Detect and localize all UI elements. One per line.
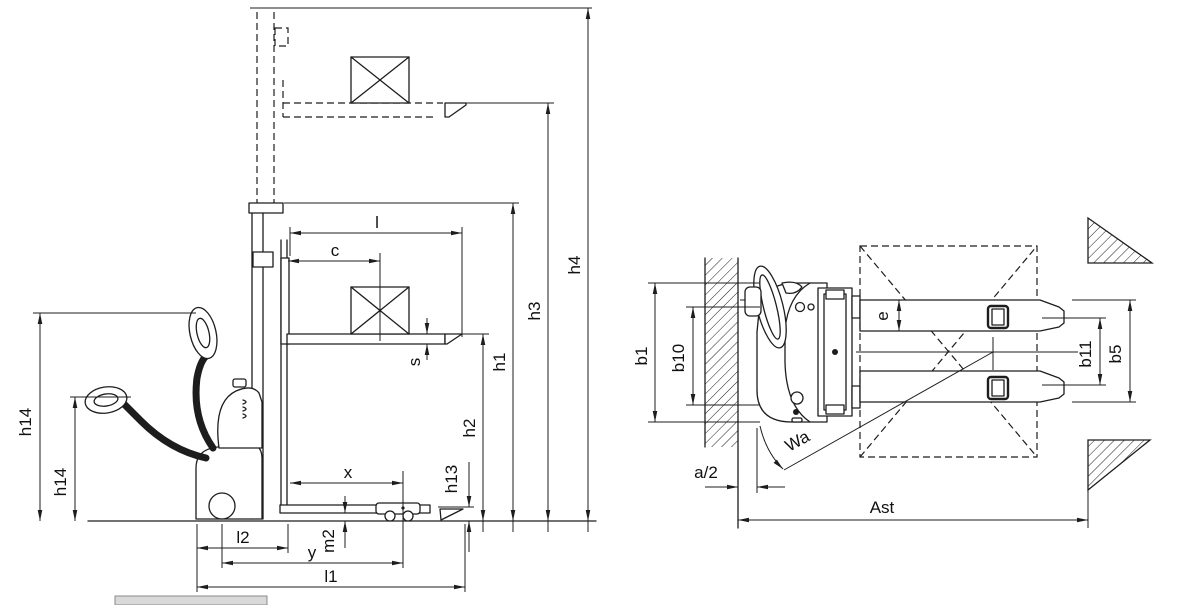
cowl-cap: [233, 379, 246, 387]
dim-label-h2: h2: [460, 419, 479, 438]
dim-label-a-half: a/2: [694, 463, 718, 482]
load-wheel-1: [385, 511, 395, 521]
dim-b1: b1: [632, 283, 760, 422]
dim-label-s: s: [405, 358, 424, 367]
drive-wheel: [209, 493, 235, 519]
stacker-dimension-diagram: h4 h3 h1 h2 h13 h: [0, 0, 1198, 605]
dim-h3: h3: [455, 103, 554, 532]
carriage-top: [818, 288, 860, 416]
caption-bar: [115, 596, 267, 605]
dim-label-ast: Ast: [870, 498, 895, 517]
side-view: h4 h3 h1 h2 h13 h: [16, 8, 596, 605]
dim-label-b5: b5: [1106, 345, 1125, 364]
dim-h14-raised: h14: [16, 313, 196, 521]
fork-roller-upper-inner: [992, 309, 1004, 325]
dim-label-b10: b10: [669, 344, 688, 372]
dim-label-x: x: [344, 463, 353, 482]
dim-label-y: y: [308, 543, 317, 562]
tiller-raised: [184, 305, 221, 448]
lower-fork: [280, 503, 463, 521]
dim-label-l1: l1: [324, 567, 337, 586]
dim-label-h4: h4: [565, 256, 584, 275]
dim-l2: l2: [197, 524, 288, 592]
dim-label-h3: h3: [525, 302, 544, 321]
tiller-grip: [745, 287, 761, 316]
load-wheel-2: [403, 511, 413, 521]
turning-radius-arc: [760, 426, 783, 469]
mast-block: [253, 252, 273, 267]
dim-label-h14-raised: h14: [16, 408, 35, 436]
rack-corner-bottom: [1088, 440, 1150, 490]
dim-label-b1: b1: [632, 347, 651, 366]
rack-corner-top: [1088, 218, 1152, 263]
fork-top-lower: [860, 371, 1064, 402]
dim-label-e: e: [873, 311, 892, 320]
top-view: Wa b1 b10 e b11 b5: [632, 218, 1152, 528]
dim-h13: h13: [438, 462, 474, 552]
cowl: [218, 388, 262, 448]
dim-label-m2: m2: [319, 529, 338, 553]
dim-label-b11: b11: [1076, 340, 1095, 367]
dim-label-h14-lowered: h14: [51, 468, 70, 496]
mast-extended-dashed: [257, 12, 288, 203]
chassis: [196, 379, 262, 519]
fork-raised-dashed: [283, 103, 466, 117]
dim-h14-lowered: h14: [51, 397, 131, 521]
dim-h4: h4: [565, 8, 588, 532]
dim-label-l: l: [375, 213, 379, 232]
fork-tip-mid: [445, 334, 462, 344]
fork-tip-raised: [445, 103, 466, 117]
dim-label-h13: h13: [442, 465, 461, 493]
dim-label-wa: Wa: [782, 427, 813, 456]
load-roller-housing: [376, 503, 420, 514]
mast-cap: [249, 203, 283, 213]
dim-c: c: [288, 241, 380, 261]
fork-roller-lower-inner: [992, 380, 1004, 396]
fork-carriage-plate: [281, 258, 289, 344]
load-top: [351, 57, 409, 103]
fork-tip-low: [440, 509, 463, 520]
dim-label-l2: l2: [236, 528, 249, 547]
tiller-lowered: [83, 384, 206, 458]
dim-label-h1: h1: [490, 353, 509, 372]
load-mid: [351, 253, 409, 341]
fork-blade-mid: [287, 334, 445, 344]
diagram-svg: h4 h3 h1 h2 h13 h: [0, 0, 1198, 605]
dim-label-c: c: [331, 241, 340, 260]
dim-ast: Ast: [738, 490, 1088, 528]
